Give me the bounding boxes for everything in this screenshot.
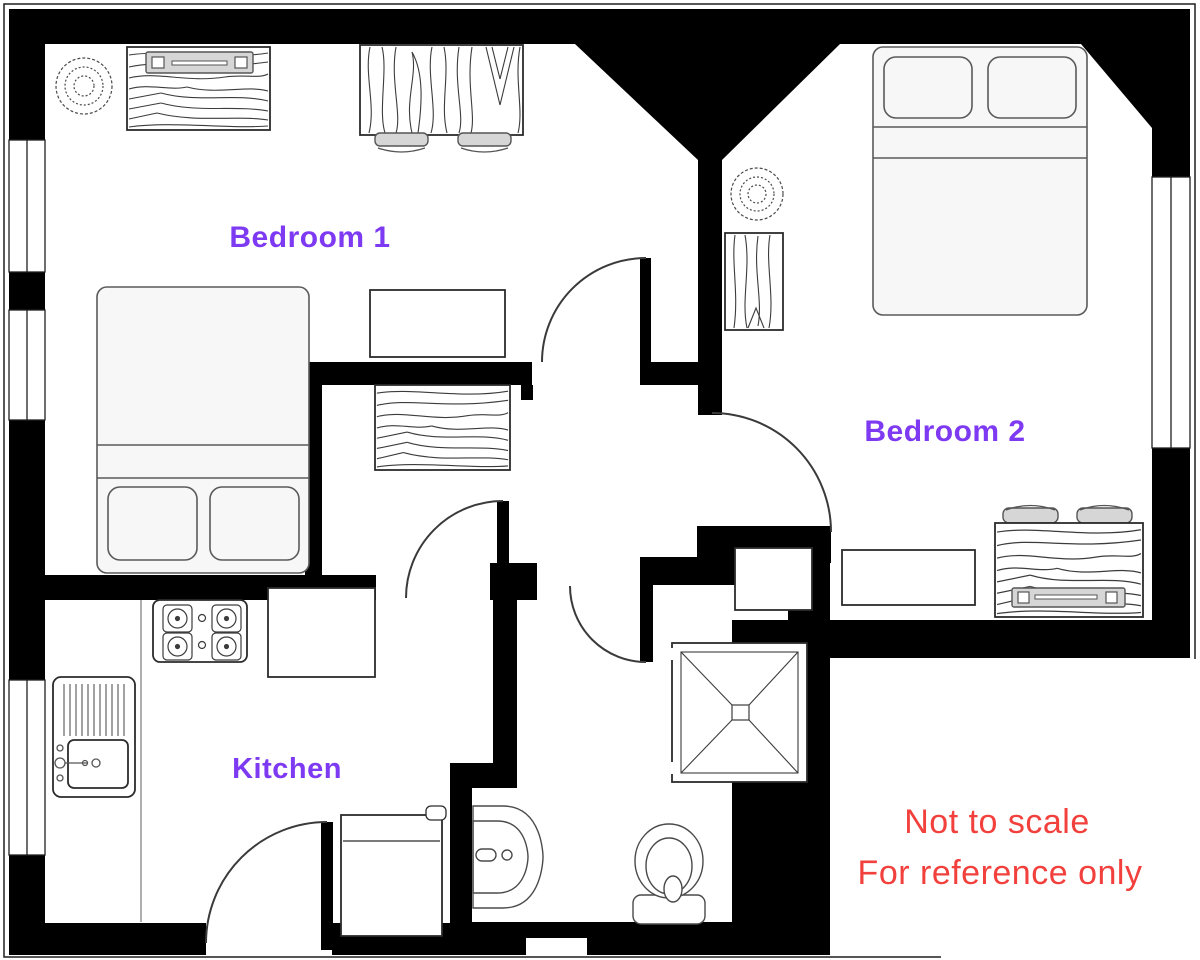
counter-unit [268,588,375,677]
room-label-bedroom2: Bedroom 2 [864,415,1025,448]
disclaimer-text: Not to scale For reference only [858,803,1143,892]
window-bedroom1-upper-icon [9,140,45,272]
window-bedroom1-lower-icon [9,310,45,420]
side-table-icon [842,550,975,605]
bathroom-sink-icon [473,806,543,908]
rug-icon [375,385,510,470]
toilet-icon [633,824,705,924]
stool-icon [1077,506,1132,524]
room-label-bedroom1: Bedroom 1 [229,221,390,254]
floor-plan-page: Bedroom 1 Bedroom 2 Kitchen Not to scale… [0,0,1200,960]
pillow-icon [210,487,299,560]
dishwasher-icon [341,806,446,936]
stool-icon [1003,506,1058,524]
dresser-desk-icon [995,506,1143,618]
double-bed-icon [97,287,309,573]
stove-icon [153,600,247,662]
nightstand-icon [735,548,812,610]
window-kitchen-icon [9,680,45,855]
double-bed-icon [873,47,1087,315]
rug-icon [725,233,783,330]
kitchen-sink-icon [53,677,135,797]
door-bedroom2-icon [712,413,831,532]
plant-icon [731,168,783,220]
stool-icon [458,133,511,152]
floor-plan-svg: Bedroom 1 Bedroom 2 Kitchen Not to scale… [0,0,1200,960]
room-label-kitchen: Kitchen [232,753,342,785]
disclaimer-line2: For reference only [858,854,1143,892]
pillow-icon [108,487,197,560]
disclaimer-line1: Not to scale [904,803,1090,841]
door-bathroom-icon [570,585,653,662]
pillow-icon [988,57,1076,118]
pillow-icon [884,57,972,118]
stool-icon [375,133,428,152]
desk-icon [360,45,523,152]
plant-icon [56,58,112,114]
door-bedroom1-icon [542,258,651,362]
door-kitchen-exterior-icon [206,822,333,950]
window-bedroom2-icon [1152,177,1190,448]
bedroom1-furniture [56,45,523,573]
side-table-icon [370,290,505,357]
shower-icon [668,643,807,782]
dresser-icon [127,47,270,130]
